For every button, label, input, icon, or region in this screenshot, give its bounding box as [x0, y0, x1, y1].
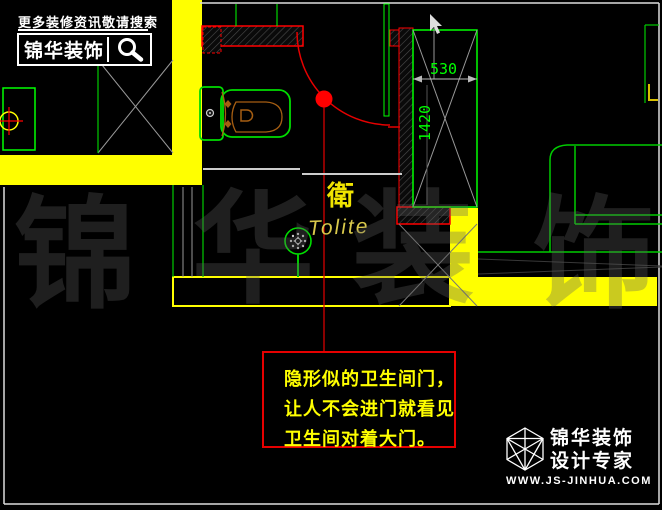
footer-brand-line2: 设计专家	[550, 450, 634, 473]
sofa-icon	[478, 145, 662, 252]
room-label-cn: 衛	[327, 174, 354, 213]
magnifier-icon	[113, 36, 147, 63]
search-brand-box: 锦华装饰	[17, 33, 152, 66]
cad-floorplan-screenshot: 锦 华 装 饰 更多装修资讯敬请搜索 锦华装饰 衛 Tolite 530 142…	[0, 0, 662, 510]
dimension-530: 530	[430, 60, 457, 78]
annotation-line: 让人不会进门就看见	[284, 394, 454, 424]
top-right-detail	[645, 25, 659, 103]
footer-brand-line1: 锦华装饰	[550, 427, 634, 450]
highlight-wall-outline	[173, 277, 450, 306]
annotation-line: 隐形似的卫生间门，	[284, 364, 454, 394]
left-wall-detail	[3, 60, 173, 153]
cube-logo-icon	[504, 426, 546, 472]
room-label-en: Tolite	[308, 215, 370, 241]
shower-icon	[285, 228, 311, 277]
annotation-line: 卫生间对着大门。	[284, 424, 454, 454]
divider	[107, 37, 109, 62]
footer-brand: 锦华装饰 设计专家 WWW.JS-JINHUA.COM	[500, 424, 650, 488]
header-rule	[18, 29, 148, 31]
footer-url: WWW.JS-JINHUA.COM	[506, 475, 652, 487]
dimension-1420: 1420	[406, 103, 444, 143]
cursor-arrow-icon	[430, 14, 442, 34]
floor-lines	[478, 259, 662, 274]
toilet-icon	[200, 87, 290, 140]
annotation-callout: 隐形似的卫生间门， 让人不会进门就看见 卫生间对着大门。	[262, 351, 456, 448]
brand-name: 锦华装饰	[19, 36, 104, 63]
door-swing-icon	[236, 4, 400, 127]
